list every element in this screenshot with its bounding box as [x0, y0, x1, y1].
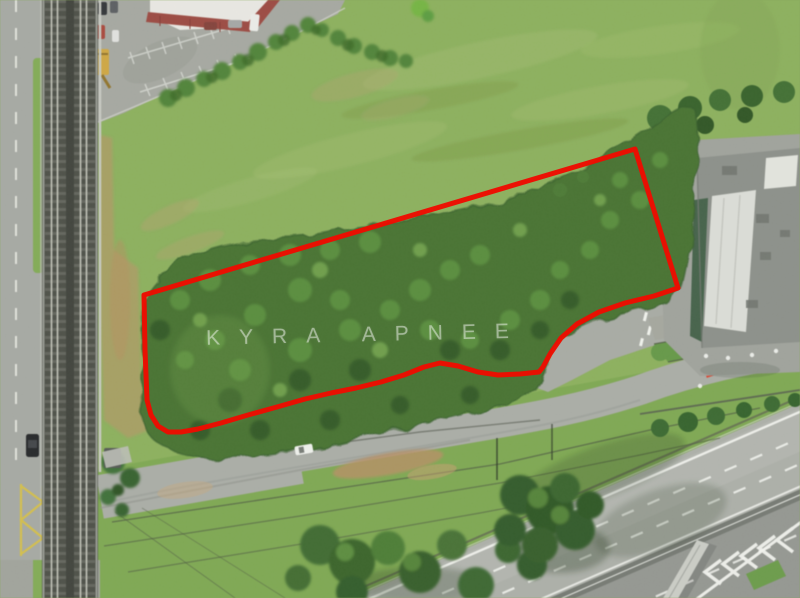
land-boundary	[144, 149, 678, 432]
aerial-photo: KYRA APNEE	[0, 0, 800, 598]
annotation-overlay	[0, 0, 800, 598]
